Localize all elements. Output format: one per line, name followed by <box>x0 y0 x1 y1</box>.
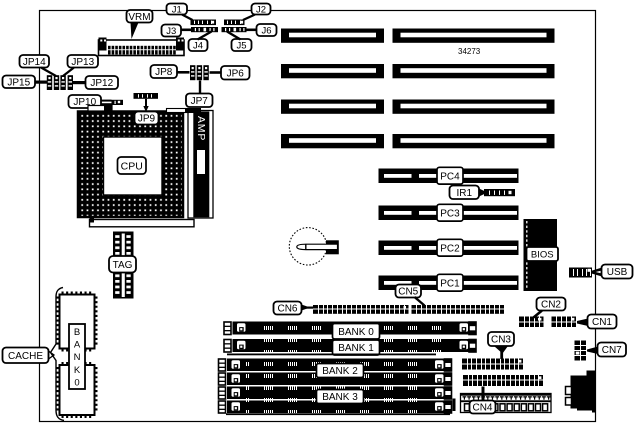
svg-text:PC2: PC2 <box>440 243 460 254</box>
svg-text:JP9: JP9 <box>138 114 156 125</box>
svg-text:J2: J2 <box>256 4 266 15</box>
svg-text:BIOS: BIOS <box>531 249 554 260</box>
svg-text:JP6: JP6 <box>227 68 245 79</box>
svg-text:PC1: PC1 <box>440 278 460 289</box>
svg-text:AMP: AMP <box>195 116 207 141</box>
svg-text:0: 0 <box>74 377 79 388</box>
svg-text:BANK 2: BANK 2 <box>322 366 358 377</box>
svg-text:JP15: JP15 <box>7 77 30 88</box>
svg-text:BANK 0: BANK 0 <box>338 327 374 338</box>
svg-text:PC3: PC3 <box>440 208 460 219</box>
svg-text:CN6: CN6 <box>277 304 297 315</box>
svg-text:USB: USB <box>607 267 628 278</box>
svg-text:CN1: CN1 <box>592 317 612 328</box>
svg-text:N: N <box>74 352 81 363</box>
svg-text:BANK 3: BANK 3 <box>322 392 358 403</box>
svg-text:IR1: IR1 <box>456 188 472 199</box>
svg-text:VRM: VRM <box>128 12 150 23</box>
svg-text:JP8: JP8 <box>155 67 173 78</box>
svg-text:B: B <box>74 327 80 338</box>
svg-text:JP13: JP13 <box>71 57 94 68</box>
svg-text:CN4: CN4 <box>472 403 492 414</box>
svg-text:BANK 1: BANK 1 <box>338 343 374 354</box>
svg-text:JP14: JP14 <box>23 57 46 68</box>
svg-text:PC4: PC4 <box>440 171 460 182</box>
svg-text:CN3: CN3 <box>491 335 511 346</box>
svg-text:TAG: TAG <box>113 260 133 271</box>
svg-text:J4: J4 <box>193 40 203 51</box>
svg-text:CN2: CN2 <box>541 300 561 311</box>
svg-text:CACHE: CACHE <box>8 351 43 362</box>
svg-text:J1: J1 <box>172 4 182 15</box>
svg-text:J3: J3 <box>166 26 176 37</box>
svg-text:JP12: JP12 <box>90 78 113 89</box>
svg-text:CPU: CPU <box>121 160 143 172</box>
svg-text:CN7: CN7 <box>602 345 622 356</box>
svg-text:J6: J6 <box>261 25 271 36</box>
svg-text:CN5: CN5 <box>398 287 418 298</box>
svg-text:K: K <box>74 365 81 376</box>
svg-text:A: A <box>74 340 81 351</box>
svg-text:JP7: JP7 <box>191 96 209 107</box>
svg-text:J5: J5 <box>236 40 246 51</box>
svg-text:34273: 34273 <box>458 47 481 56</box>
